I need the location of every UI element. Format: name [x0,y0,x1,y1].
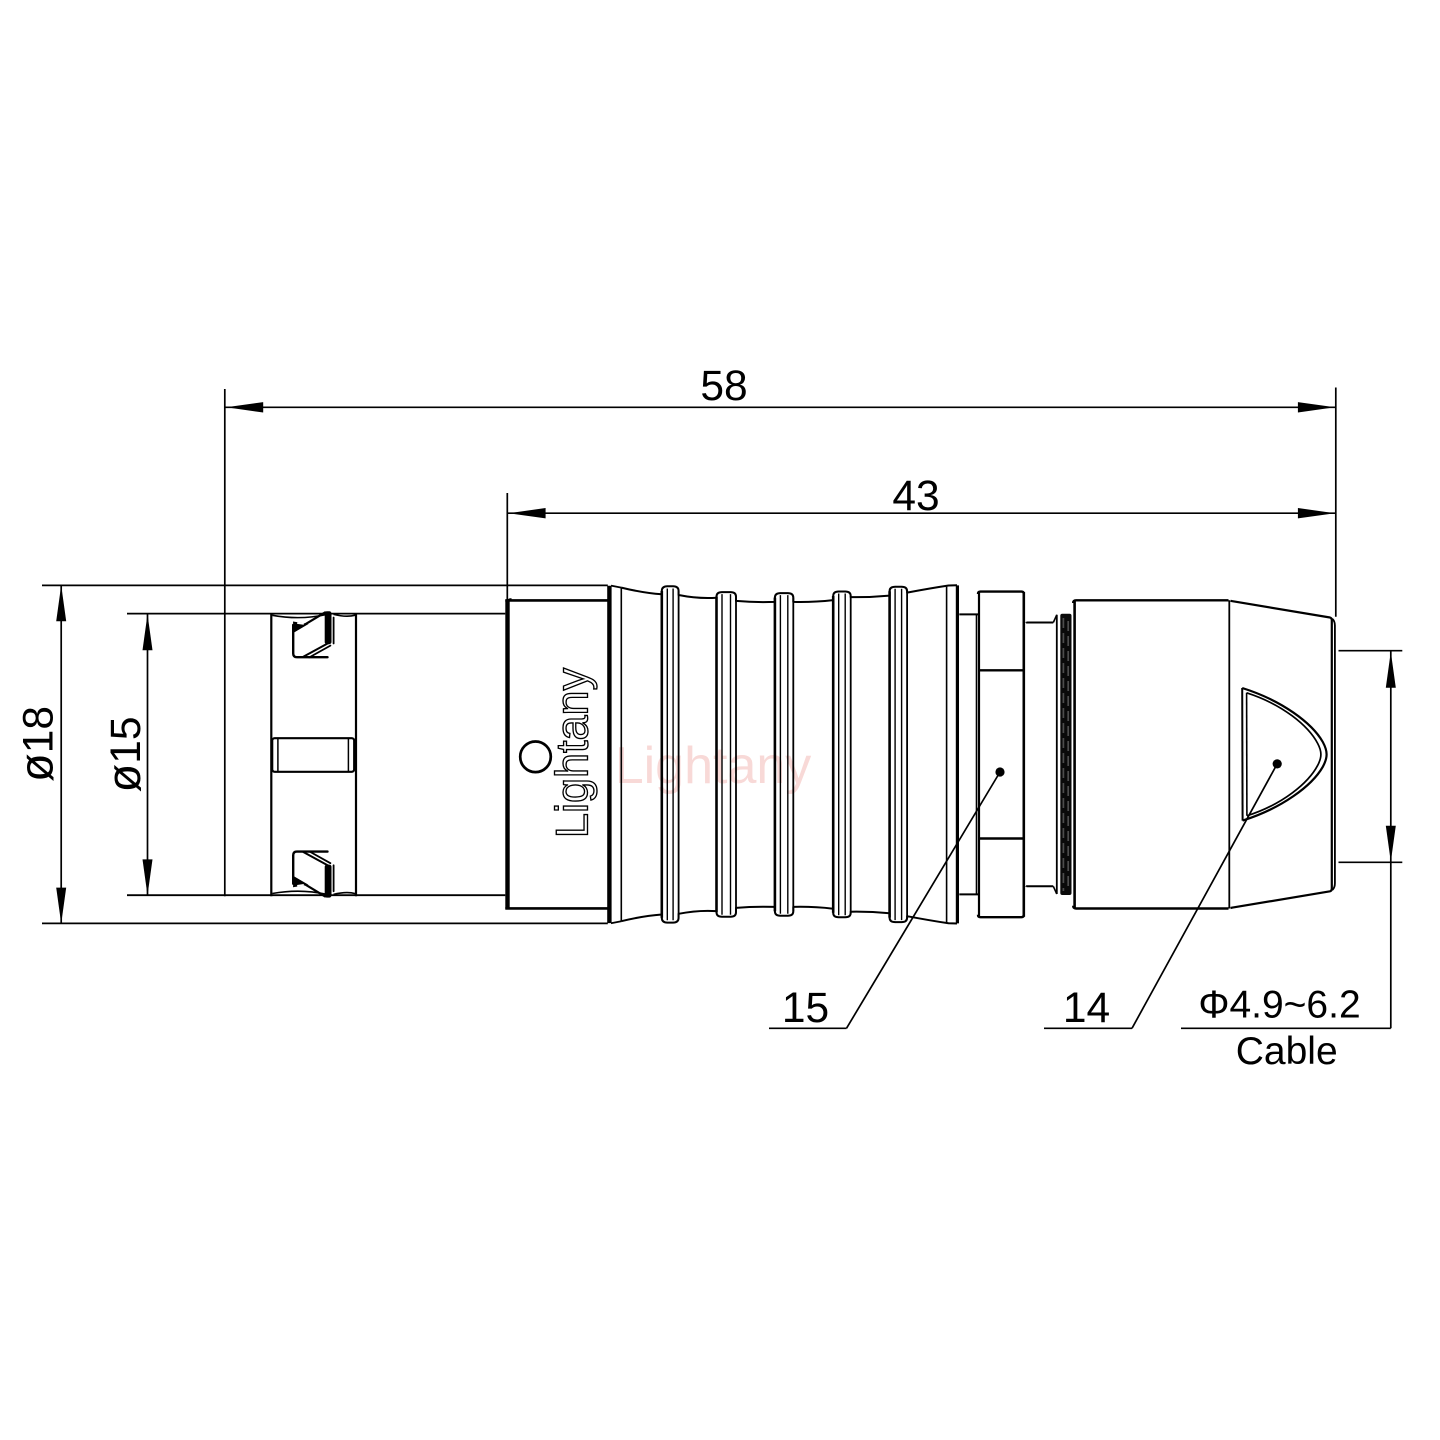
svg-text:Lightany: Lightany [615,737,812,795]
svg-text:43: 43 [892,473,939,520]
svg-text:14: 14 [1063,985,1110,1032]
svg-text:Lightany: Lightany [547,667,598,838]
svg-text:ø15: ø15 [97,717,150,793]
svg-text:Φ4.9~6.2: Φ4.9~6.2 [1198,984,1360,1027]
svg-text:ø18: ø18 [10,706,63,782]
svg-text:58: 58 [700,363,747,410]
svg-text:15: 15 [782,985,829,1032]
svg-text:Cable: Cable [1236,1030,1338,1073]
